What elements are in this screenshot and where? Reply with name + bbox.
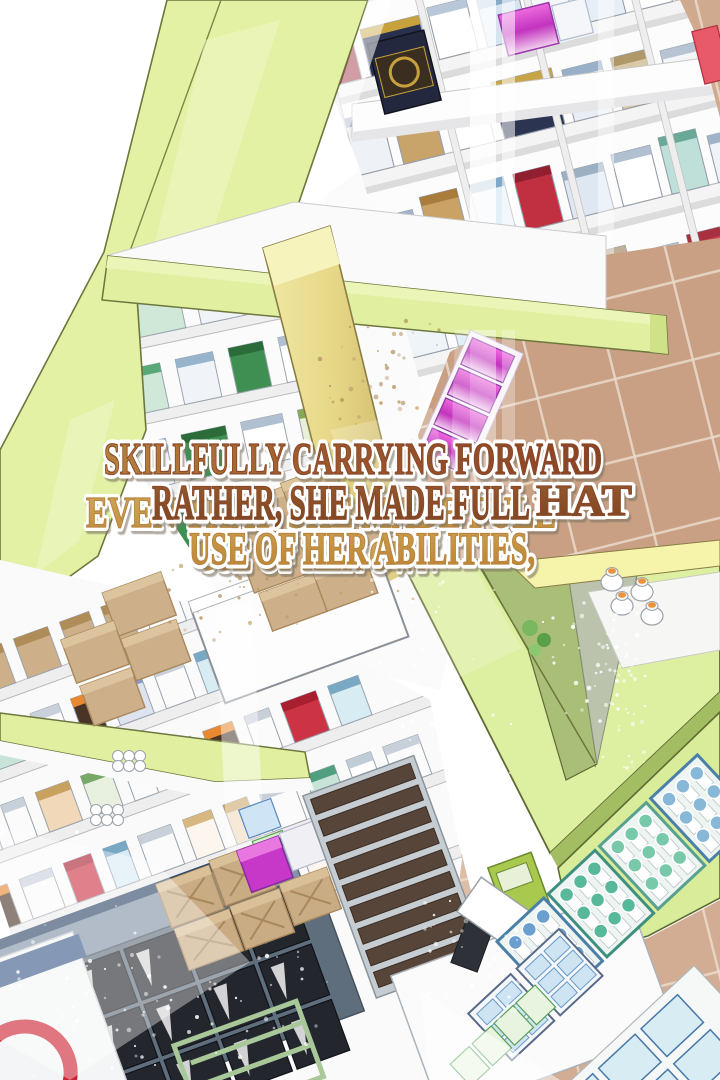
svg-text:HAT: HAT <box>536 476 632 525</box>
svg-text:RATHER, SHE MADE FULL: RATHER, SHE MADE FULL <box>152 474 530 530</box>
svg-text:USE OF HER ABILITIES,: USE OF HER ABILITIES, <box>189 523 535 575</box>
